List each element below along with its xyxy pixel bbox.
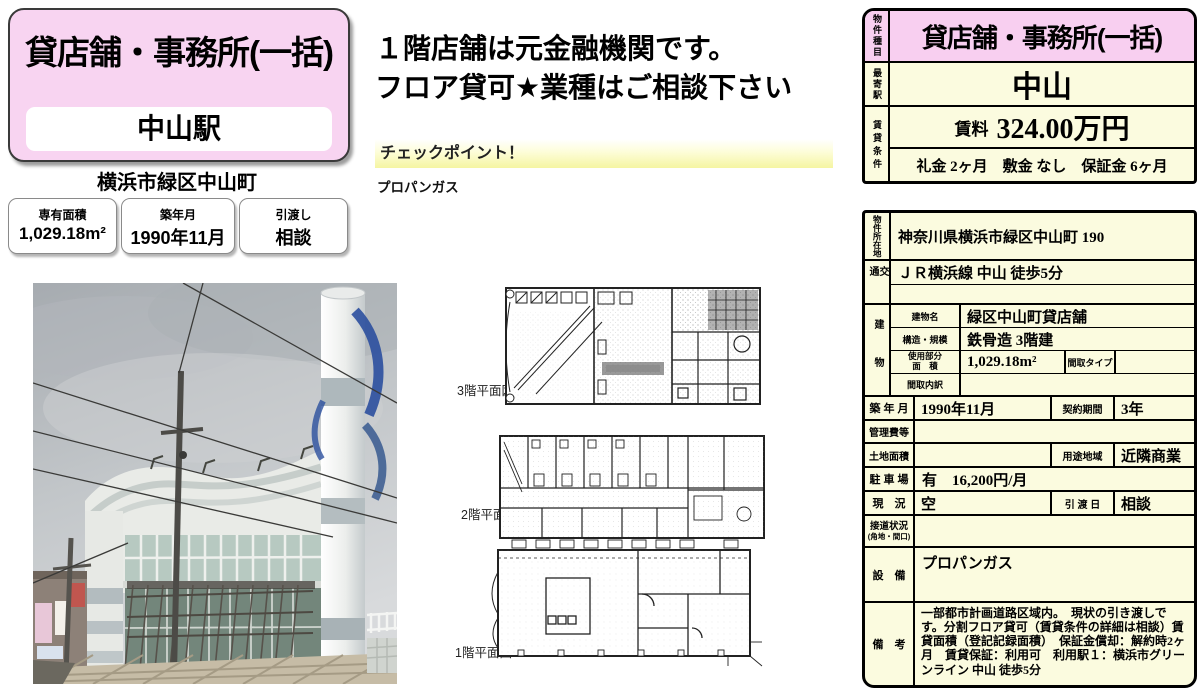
handover-value: 相談 <box>1115 492 1194 514</box>
access-empty-row <box>891 285 1194 303</box>
equipment-value: プロパンガス <box>915 548 1194 601</box>
rent-label: 賃料 <box>954 115 988 140</box>
headline-line2: フロア貸可★業種はご相談下さい <box>375 66 845 106</box>
parking-value: 有 16,200円/月 <box>915 468 1194 490</box>
road-label: 接道状況 (角地・間口) <box>865 516 915 546</box>
property-type-title: 貸店舗・事務所(一括) <box>10 26 348 74</box>
badge-built-value: 1990年11月 <box>122 224 234 250</box>
floorplan-1f <box>482 542 766 668</box>
summary-type-label-cell: 物件種目 <box>865 11 890 61</box>
used-area-value: 1,029.18m² <box>961 351 1066 373</box>
road-value <box>915 516 1194 546</box>
detail-row-built: 築 年 月 1990年11月 契約期間 3年 <box>865 397 1194 421</box>
badge-area-value: 1,029.18m² <box>9 224 116 244</box>
summary-station-value: 中山 <box>890 63 1194 105</box>
detail-table: 物件所在地 神奈川県横浜市緑区中山町 190 交通 ＪＲ横浜線 中山 徒歩5分 … <box>862 210 1197 688</box>
building-name-value: 緑区中山町貸店舗 <box>961 305 1194 327</box>
equip-label: 設 備 <box>865 548 915 601</box>
land-value <box>915 444 1050 466</box>
detail-row-location: 物件所在地 神奈川県横浜市緑区中山町 190 <box>865 213 1194 261</box>
badge-handover-label: 引渡し <box>240 206 347 223</box>
building-label-cell: 建物 <box>865 305 891 395</box>
summary-terms-row: 礼金 2ヶ月 敷金 なし 保証金 6ヶ月 <box>890 149 1194 181</box>
summary-terms-label: 賃貸条件 <box>872 117 881 172</box>
badge-handover-value: 相談 <box>240 224 347 250</box>
summary-row-terms: 賃貸条件 賃料 324.00万円 礼金 2ヶ月 敷金 なし 保証金 6ヶ月 <box>865 107 1194 181</box>
mgmt-label: 管理費等 <box>865 421 915 442</box>
station-name: 中山駅 <box>137 113 221 144</box>
building-photo <box>33 283 397 684</box>
summary-table: 物件種目 貸店舗・事務所(一括) 最寄駅 中山 賃貸条件 賃料 324.00万円… <box>862 8 1197 184</box>
madori-detail-label: 間取内訳 <box>891 374 961 395</box>
summary-station-label: 最寄駅 <box>872 68 881 101</box>
location-label-cell: 物件所在地 <box>865 213 891 259</box>
station-name-box: 中山駅 <box>26 107 332 151</box>
zone-value: 近隣商業 <box>1115 444 1194 466</box>
access-value: ＪＲ横浜線 中山 徒歩5分 <box>891 261 1194 284</box>
badge-built: 築年月 1990年11月 <box>121 198 235 254</box>
contract-label: 契約期間 <box>1050 397 1115 419</box>
zone-label: 用途地域 <box>1050 444 1115 466</box>
madori-type-value <box>1116 351 1194 373</box>
badge-built-label: 築年月 <box>122 206 234 223</box>
summary-type-value: 貸店舗・事務所(一括) <box>890 11 1194 61</box>
summary-rent-row: 賃料 324.00万円 <box>890 107 1194 149</box>
used-area-label: 使用部分 面 積 <box>891 351 961 373</box>
checkpoint-item: プロパンガス <box>377 176 459 196</box>
location-value: 神奈川県横浜市緑区中山町 190 <box>891 213 1194 259</box>
rent-value: 324.00万円 <box>996 107 1129 147</box>
notes-value: 一部都市計画道路区域内。 現状の引き渡しです。分割フロア貸可（賃貸条件の詳細は相… <box>915 603 1194 685</box>
headline-line1: １階店舗は元金融機関です。 <box>375 27 845 67</box>
building-label: 建物 <box>872 305 882 395</box>
built-label: 築 年 月 <box>865 397 915 419</box>
badge-handover: 引渡し 相談 <box>239 198 348 254</box>
detail-row-land: 土地面積 用途地域 近隣商業 <box>865 444 1194 468</box>
property-address: 横浜市緑区中山町 <box>8 166 346 195</box>
summary-row-type: 物件種目 貸店舗・事務所(一括) <box>865 11 1194 63</box>
detail-row-parking: 駐 車 場 有 16,200円/月 <box>865 468 1194 492</box>
parking-label: 駐 車 場 <box>865 468 915 490</box>
summary-station-label-cell: 最寄駅 <box>865 63 890 105</box>
detail-row-status: 現 況 空 引 渡 日 相談 <box>865 492 1194 516</box>
access-label-cell: 交通 <box>865 261 891 303</box>
building-name-label: 建物名 <box>891 305 961 327</box>
property-type-card: 貸店舗・事務所(一括) 中山駅 <box>8 8 350 162</box>
summary-type-label: 物件種目 <box>872 14 881 58</box>
access-label: 交通 <box>867 261 887 303</box>
summary-row-station: 最寄駅 中山 <box>865 63 1194 107</box>
checkpoint-title: チェックポイント！ <box>380 145 524 162</box>
madori-detail-value <box>961 374 1194 395</box>
detail-row-equipment: 設 備 プロパンガス <box>865 548 1194 603</box>
detail-row-notes: 備 考 一部都市計画道路区域内。 現状の引き渡しです。分割フロア貸可（賃貸条件の… <box>865 603 1194 685</box>
badge-area: 専有面積 1,029.18m² <box>8 198 117 254</box>
structure-label: 構造・規模 <box>891 328 961 350</box>
mgmt-value <box>915 421 1194 442</box>
notes-label: 備 考 <box>865 603 915 685</box>
terms-value: 礼金 2ヶ月 敷金 なし 保証金 6ヶ月 <box>916 155 1167 176</box>
handover-label: 引 渡 日 <box>1050 492 1115 514</box>
contract-value: 3年 <box>1115 397 1194 419</box>
built-value: 1990年11月 <box>915 397 1050 419</box>
checkpoint-bar: チェックポイント！ <box>375 139 833 168</box>
location-label: 物件所在地 <box>873 215 882 258</box>
detail-row-road: 接道状況 (角地・間口) <box>865 516 1194 548</box>
structure-value: 鉄骨造 3階建 <box>961 328 1194 350</box>
flyer-page: 貸店舗・事務所(一括) 中山駅 横浜市緑区中山町 専有面積 1,029.18m²… <box>0 0 1200 692</box>
status-value: 空 <box>915 492 1050 514</box>
floorplan-3f <box>502 284 766 410</box>
detail-row-mgmt: 管理費等 <box>865 421 1194 444</box>
detail-row-access: 交通 ＪＲ横浜線 中山 徒歩5分 <box>865 261 1194 305</box>
land-label: 土地面積 <box>865 444 915 466</box>
badge-area-label: 専有面積 <box>9 206 116 223</box>
summary-terms-label-cell: 賃貸条件 <box>865 107 890 181</box>
building-photo-illustration <box>33 283 397 684</box>
detail-row-building: 建物 建物名 緑区中山町貸店舗 構造・規模 鉄骨造 3階建 使用部分 面 積 1… <box>865 305 1194 397</box>
madori-type-label: 間取タイプ <box>1066 351 1116 373</box>
floorplan-2f <box>492 430 772 558</box>
status-label: 現 況 <box>865 492 915 514</box>
